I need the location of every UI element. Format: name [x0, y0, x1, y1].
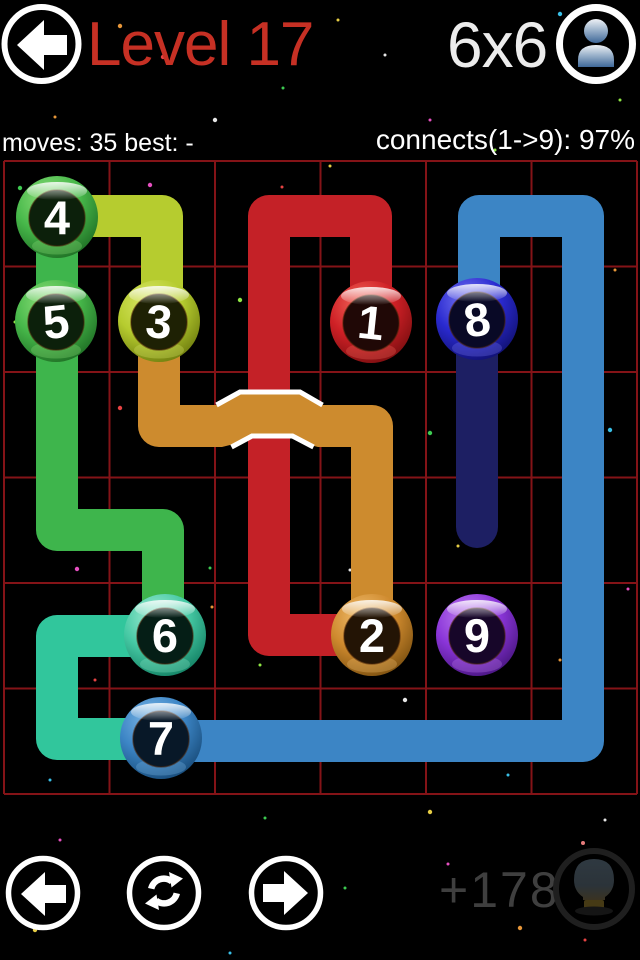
svg-text:5: 5: [40, 294, 72, 349]
svg-text:Level 17: Level 17: [87, 10, 313, 79]
svg-text:connects(1->9): 97%: connects(1->9): 97%: [376, 124, 635, 155]
svg-text:6x6: 6x6: [447, 9, 547, 81]
svg-text:3: 3: [144, 294, 175, 349]
svg-text:9: 9: [464, 609, 490, 662]
svg-text:1: 1: [355, 295, 387, 350]
svg-text:4: 4: [44, 191, 70, 244]
svg-text:7: 7: [148, 712, 174, 765]
svg-text:moves: 35 best: -: moves: 35 best: -: [2, 129, 194, 157]
svg-text:2: 2: [359, 609, 385, 662]
svg-text:+178: +178: [439, 862, 560, 918]
svg-text:6: 6: [152, 609, 178, 662]
